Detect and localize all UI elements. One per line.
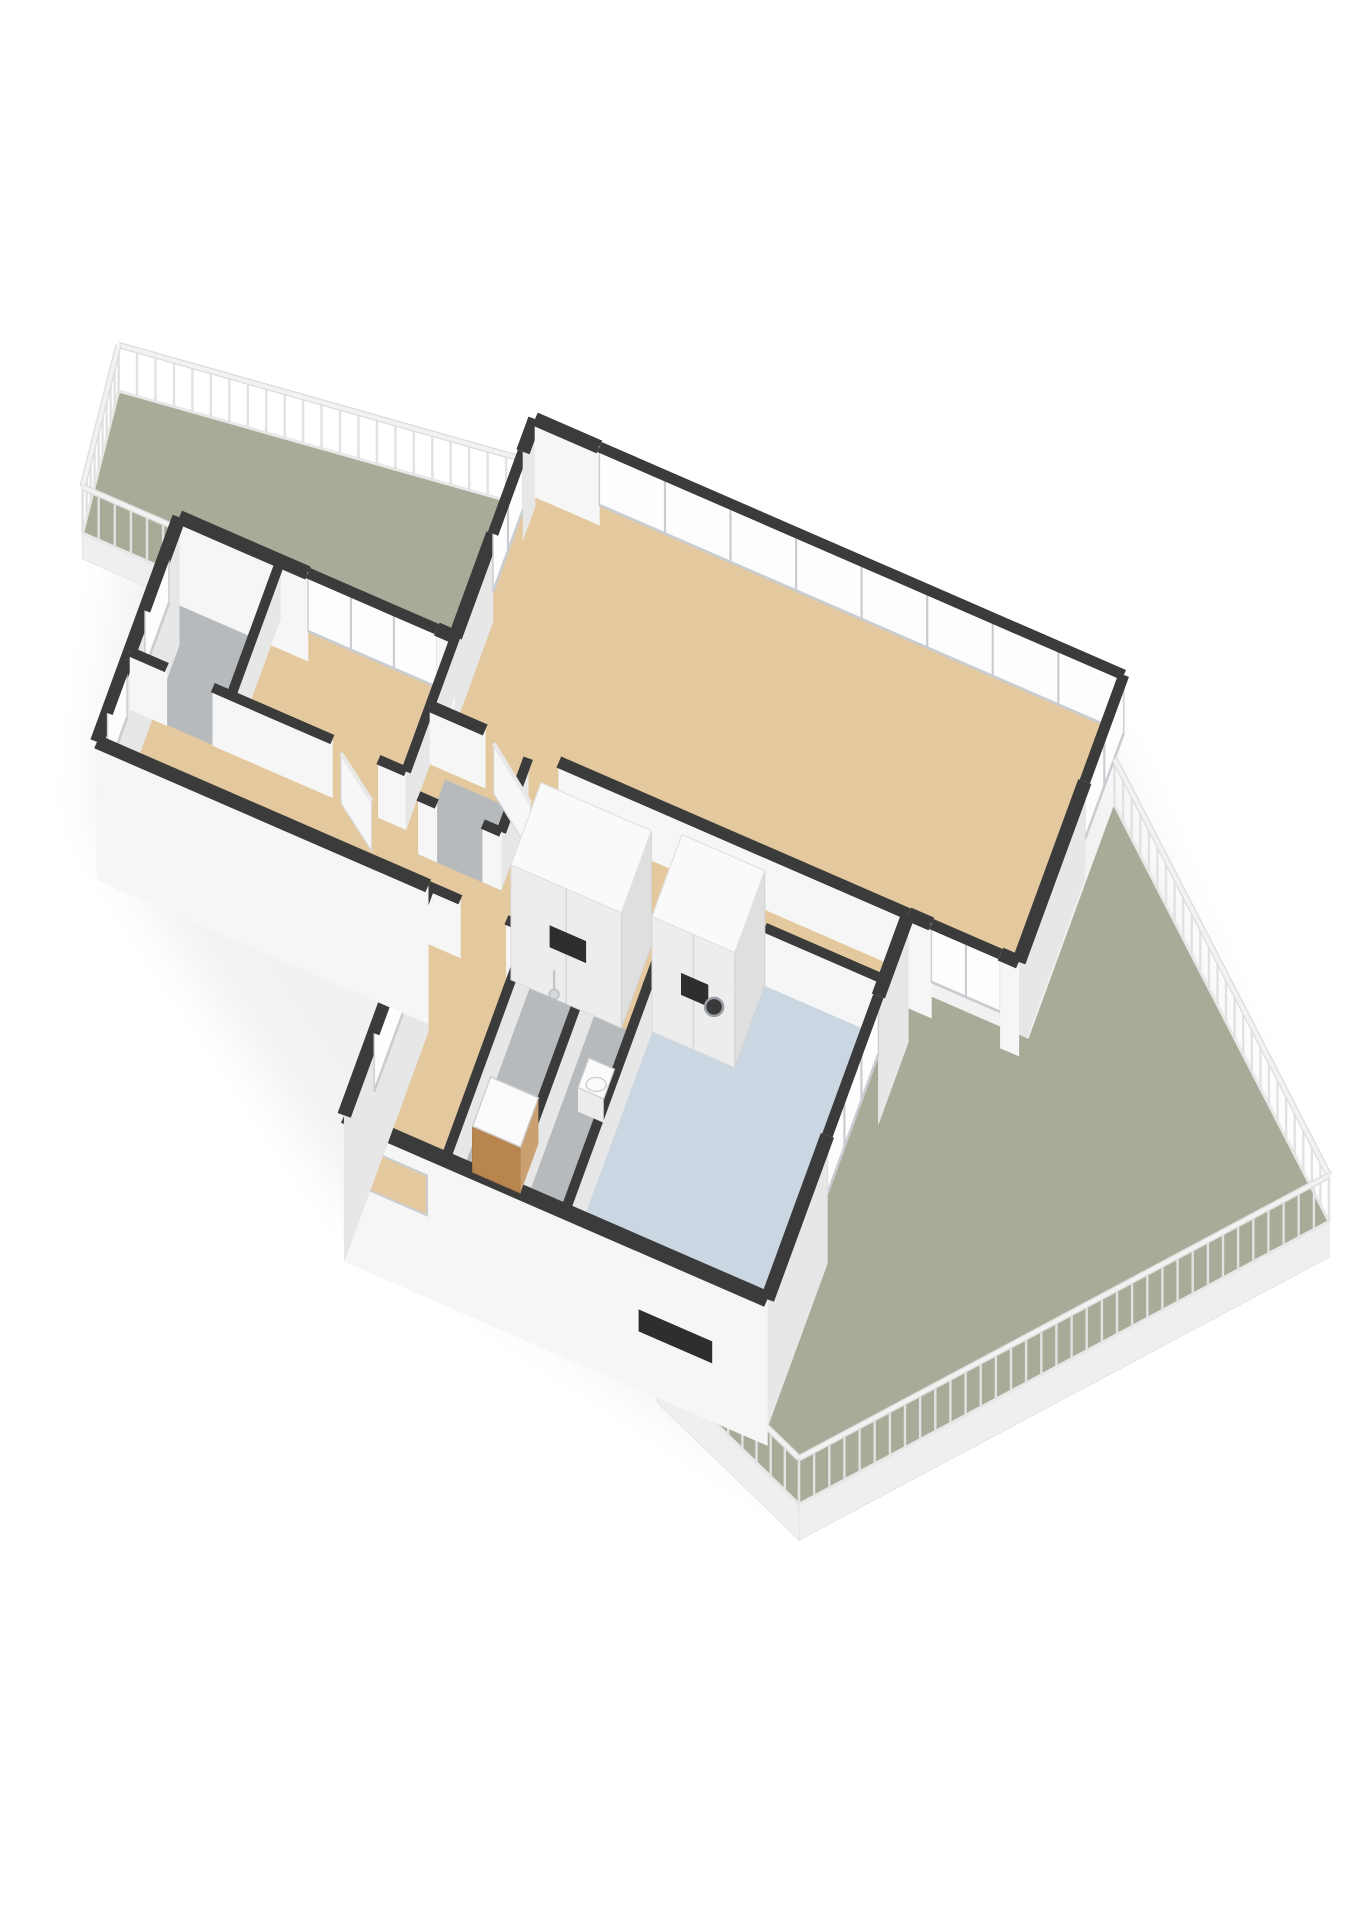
closet-south-wall-a <box>418 796 436 862</box>
kitchen-cabinet <box>652 835 765 1068</box>
leftwing-corridor-wall-c <box>378 760 406 830</box>
closet-south-wall-b <box>483 824 501 890</box>
floorplan-canvas <box>0 0 1358 1920</box>
entry-se-wall-b <box>1000 954 1018 1056</box>
entry-se-wall-a <box>908 914 931 1018</box>
floorplan-3d-render <box>0 0 1358 1920</box>
